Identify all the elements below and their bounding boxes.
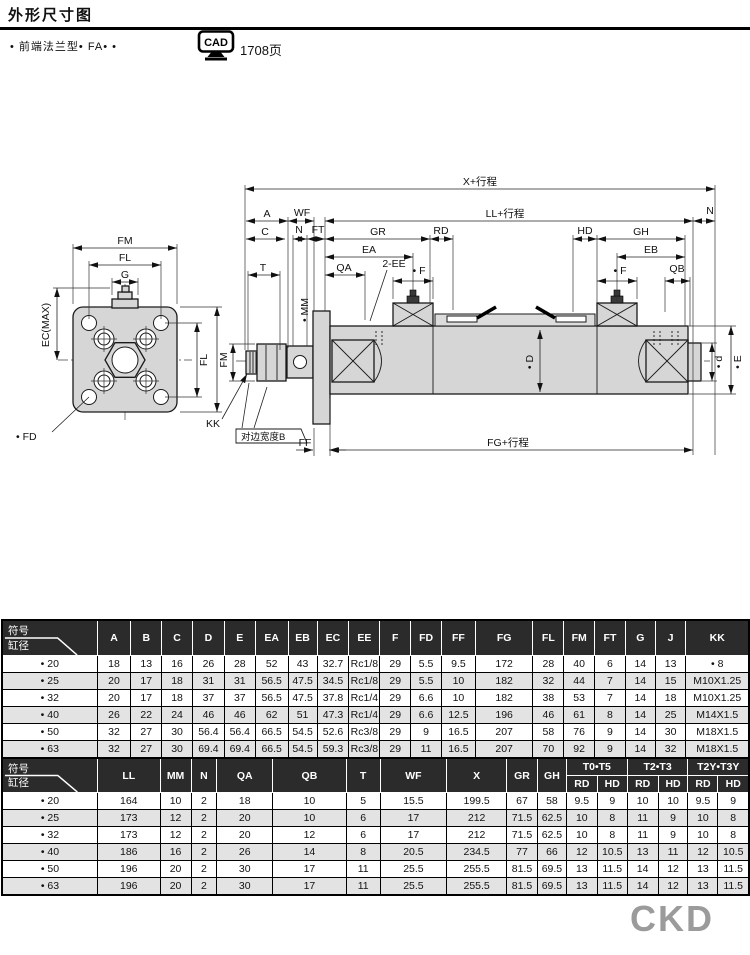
data-cell: 43 <box>288 656 317 673</box>
table-row: • 25173122201061721271.562.5108119108 <box>2 810 749 827</box>
data-cell: 29 <box>380 690 411 707</box>
data-cell: 46 <box>224 707 255 724</box>
bore-cell: • 25 <box>2 673 97 690</box>
data-cell: • 8 <box>686 656 749 673</box>
col-header: GR <box>507 758 538 793</box>
data-cell: 255.5 <box>447 861 507 878</box>
data-cell: 18 <box>655 690 686 707</box>
dim-label-f-front: • F <box>412 265 425 277</box>
data-cell: 38 <box>533 690 564 707</box>
data-cell: 37 <box>224 690 255 707</box>
table-row: • 32173122201261721271.562.5108119108 <box>2 827 749 844</box>
data-cell: 173 <box>97 810 160 827</box>
data-cell: 196 <box>97 861 160 878</box>
dim-label-ll-stroke: LL+行程 <box>486 207 525 220</box>
col-header: EB <box>288 620 317 656</box>
dim-label-ff: FF <box>299 437 312 449</box>
data-cell: 186 <box>97 844 160 861</box>
data-cell: 12 <box>566 844 597 861</box>
data-cell: 14 <box>627 861 658 878</box>
col-header: MM <box>160 758 191 793</box>
data-cell: 18 <box>162 673 193 690</box>
data-cell: 6 <box>595 656 626 673</box>
sub-col-header: RD <box>627 776 658 793</box>
data-cell: 2 <box>191 793 217 810</box>
cad-icon: CAD <box>197 30 237 61</box>
data-cell: 11.5 <box>597 861 627 878</box>
data-cell: 199.5 <box>447 793 507 810</box>
data-cell: 10.5 <box>718 844 749 861</box>
data-cell: 15.5 <box>380 793 447 810</box>
col-header: EC <box>317 620 349 656</box>
data-cell: 11 <box>627 827 658 844</box>
table-row: • 32201718373756.547.537.8Rc1/4296.61018… <box>2 690 749 707</box>
corner-symbol-label: 符号 <box>8 761 29 776</box>
col-header: F <box>380 620 411 656</box>
data-cell: 2 <box>191 861 217 878</box>
dim-label-qb: QB <box>669 263 684 275</box>
data-cell: 207 <box>475 724 533 741</box>
table-row: • 201813162628524332.7Rc1/8295.59.517228… <box>2 656 749 673</box>
data-cell: 27 <box>131 741 162 759</box>
sub-col-header: HD <box>597 776 627 793</box>
data-cell: Rc1/4 <box>349 690 380 707</box>
group-header: T0•T5 <box>566 758 627 776</box>
data-cell: 27 <box>131 724 162 741</box>
data-cell: 29 <box>380 656 411 673</box>
data-cell: 56.4 <box>224 724 255 741</box>
data-cell: 10.5 <box>597 844 627 861</box>
data-cell: 14 <box>625 741 655 759</box>
dim-label-mm: • MM <box>299 298 311 322</box>
data-cell: 8 <box>718 827 749 844</box>
data-cell: 10 <box>273 793 347 810</box>
data-cell: 17 <box>380 810 447 827</box>
data-cell: 62.5 <box>537 810 566 827</box>
dim-label-a: A <box>263 208 270 220</box>
data-cell: 56.5 <box>255 673 288 690</box>
data-cell: 20 <box>160 878 191 896</box>
dimension-table-2: 符号缸径LLMMNQAQBTWFXGRGHT0•T5T2•T3T2Y•T3YRD… <box>1 757 750 896</box>
data-cell: 13 <box>627 844 658 861</box>
col-header: WF <box>380 758 447 793</box>
cad-icon-label: CAD <box>204 37 228 49</box>
data-cell: 5.5 <box>411 673 442 690</box>
data-cell: 16 <box>162 656 193 673</box>
data-cell: Rc3/8 <box>349 741 380 759</box>
data-cell: 14 <box>625 724 655 741</box>
data-cell: 26 <box>97 707 131 724</box>
data-cell: 18 <box>162 690 193 707</box>
data-cell: 54.5 <box>288 724 317 741</box>
front-cushion <box>332 340 382 382</box>
bore-cell: • 20 <box>2 793 97 810</box>
dim-label-n-right: N <box>706 205 714 217</box>
data-cell: 69.5 <box>537 861 566 878</box>
data-cell: 5.5 <box>411 656 442 673</box>
data-cell: 67 <box>507 793 538 810</box>
data-cell: 10 <box>688 810 718 827</box>
dim-label-qa: QA <box>336 262 351 274</box>
data-cell: 32 <box>97 724 131 741</box>
col-header: D <box>192 620 224 656</box>
data-cell: 10 <box>441 690 475 707</box>
sub-col-header: HD <box>718 776 749 793</box>
dimension-drawing: X+行程 A WF LL+行程 N C N FT GR RD HD GH EA … <box>0 158 750 470</box>
dim-label-kk: KK <box>206 418 220 430</box>
data-cell: 11.5 <box>718 878 749 896</box>
data-cell: 54.5 <box>288 741 317 759</box>
data-cell: 16 <box>160 844 191 861</box>
data-cell: 34.5 <box>317 673 349 690</box>
data-cell: 17 <box>131 690 162 707</box>
flat-b-leader-1 <box>242 383 249 428</box>
data-cell: 20 <box>160 861 191 878</box>
data-cell: 37.8 <box>317 690 349 707</box>
data-cell: M18X1.5 <box>686 741 749 759</box>
bore-cell: • 50 <box>2 861 97 878</box>
data-cell: M18X1.5 <box>686 724 749 741</box>
data-cell: 76 <box>564 724 595 741</box>
data-cell: 29 <box>380 673 411 690</box>
data-cell: 2 <box>191 844 217 861</box>
col-header: J <box>655 620 686 656</box>
data-cell: 6 <box>346 827 380 844</box>
data-cell: Rc1/8 <box>349 673 380 690</box>
data-cell: 2 <box>191 810 217 827</box>
data-cell: 14 <box>625 690 655 707</box>
table-row: • 201641021810515.5199.567589.5910109.59 <box>2 793 749 810</box>
data-cell: 26 <box>217 844 273 861</box>
dim-label-gr: GR <box>370 226 386 238</box>
data-cell: 173 <box>97 827 160 844</box>
dim-label-gh: GH <box>633 226 649 238</box>
data-cell: 12 <box>273 827 347 844</box>
data-cell: 17 <box>131 673 162 690</box>
data-cell: 14 <box>625 707 655 724</box>
dim-label-t: T <box>260 262 267 274</box>
data-cell: M10X1.25 <box>686 690 749 707</box>
data-cell: 6.6 <box>411 707 442 724</box>
data-cell: 9.5 <box>441 656 475 673</box>
fd-leader <box>52 397 89 432</box>
catalog-page: 外形尺寸图 • 前端法兰型• FA• • CAD 1708页 <box>0 0 750 955</box>
col-header: X <box>447 758 507 793</box>
corner-header: 符号缸径 <box>2 620 97 656</box>
dim-label-e: • E <box>732 355 744 369</box>
data-cell: 8 <box>346 844 380 861</box>
data-cell: 10 <box>627 793 658 810</box>
data-cell: 14 <box>273 844 347 861</box>
dim-label-f-rear: • F <box>613 265 626 277</box>
data-cell: 9 <box>718 793 749 810</box>
data-cell: 9 <box>658 810 688 827</box>
data-cell: 11 <box>658 844 688 861</box>
dim-label-fm-h: FM <box>117 235 132 247</box>
bore-cell: • 32 <box>2 690 97 707</box>
dim-label-fm-v: FM <box>218 352 230 367</box>
col-header: FL <box>533 620 564 656</box>
data-cell: 25 <box>655 707 686 724</box>
page-title: 外形尺寸图 <box>8 4 93 25</box>
col-header: QB <box>273 758 347 793</box>
data-cell: 61 <box>564 707 595 724</box>
data-cell: 47.5 <box>288 673 317 690</box>
data-cell: 30 <box>655 724 686 741</box>
data-cell: 31 <box>224 673 255 690</box>
data-cell: 37 <box>192 690 224 707</box>
data-cell: 71.5 <box>507 810 538 827</box>
data-cell: 7 <box>595 673 626 690</box>
bore-cell: • 40 <box>2 844 97 861</box>
data-cell: 92 <box>564 741 595 759</box>
dim-label-wf: WF <box>294 207 310 219</box>
col-header: EA <box>255 620 288 656</box>
data-cell: 59.3 <box>317 741 349 759</box>
data-cell: 172 <box>475 656 533 673</box>
data-cell: 16.5 <box>441 741 475 759</box>
data-cell: 8 <box>597 810 627 827</box>
data-cell: 24 <box>162 707 193 724</box>
data-cell: 30 <box>162 724 193 741</box>
spec-table: 符号缸径LLMMNQAQBTWFXGRGHT0•T5T2•T3T2Y•T3YRD… <box>1 757 750 896</box>
data-cell: 11 <box>346 878 380 896</box>
data-cell: 12 <box>658 878 688 896</box>
data-cell: 7 <box>595 690 626 707</box>
col-header: C <box>162 620 193 656</box>
data-cell: 207 <box>475 741 533 759</box>
data-cell: 9 <box>595 741 626 759</box>
data-cell: 81.5 <box>507 878 538 896</box>
data-cell: 29 <box>380 707 411 724</box>
data-cell: 52 <box>255 656 288 673</box>
data-cell: 20.5 <box>380 844 447 861</box>
ee-leader <box>370 270 387 321</box>
data-cell: 18 <box>217 793 273 810</box>
dim-label-ec-max: EC(MAX) <box>40 303 52 347</box>
col-header: G <box>625 620 655 656</box>
corner-symbol-label: 符号 <box>8 623 29 638</box>
data-cell: 62.5 <box>537 827 566 844</box>
group-header: T2•T3 <box>627 758 688 776</box>
data-cell: 11 <box>346 861 380 878</box>
data-cell: 20 <box>217 827 273 844</box>
data-cell: 14 <box>627 878 658 896</box>
table-row: • 6332273069.469.466.554.559.3Rc3/829111… <box>2 741 749 759</box>
data-cell: 9.5 <box>688 793 718 810</box>
data-cell: 30 <box>162 741 193 759</box>
data-cell: 40 <box>564 656 595 673</box>
group-header: T2Y•T3Y <box>688 758 749 776</box>
data-cell: 12 <box>160 810 191 827</box>
data-cell: 13 <box>566 878 597 896</box>
data-cell: 182 <box>475 673 533 690</box>
data-cell: 196 <box>97 878 160 896</box>
data-cell: 255.5 <box>447 878 507 896</box>
corner-header: 符号缸径 <box>2 758 97 793</box>
bore-cell: • 50 <box>2 724 97 741</box>
front-flange-view <box>73 286 177 412</box>
data-cell: 9 <box>658 827 688 844</box>
sub-col-header: RD <box>688 776 718 793</box>
data-cell: 25.5 <box>380 878 447 896</box>
table-row: • 5032273056.456.466.554.552.6Rc3/829916… <box>2 724 749 741</box>
brand-logo: CKD <box>630 898 714 940</box>
data-cell: 234.5 <box>447 844 507 861</box>
data-cell: 47.5 <box>288 690 317 707</box>
data-cell: M14X1.5 <box>686 707 749 724</box>
data-cell: 17 <box>273 878 347 896</box>
data-cell: 10 <box>566 810 597 827</box>
data-cell: 66.5 <box>255 741 288 759</box>
data-cell: 77 <box>507 844 538 861</box>
data-cell: 10 <box>566 827 597 844</box>
data-cell: 11.5 <box>718 861 749 878</box>
table-row: • 402622244646625147.3Rc1/4296.612.51964… <box>2 707 749 724</box>
data-cell: 10 <box>441 673 475 690</box>
data-cell: 20 <box>97 690 131 707</box>
bore-cell: • 25 <box>2 810 97 827</box>
data-cell: 13 <box>655 656 686 673</box>
data-cell: 56.5 <box>255 690 288 707</box>
corner-bore-label: 缸径 <box>8 775 29 790</box>
data-cell: 13 <box>566 861 597 878</box>
data-cell: 52.6 <box>317 724 349 741</box>
data-cell: 28 <box>224 656 255 673</box>
dimension-table-1: 符号缸径ABCDEEAEBECEEFFDFFFGFLFMFTGJKK• 2018… <box>1 619 750 759</box>
data-cell: 17 <box>273 861 347 878</box>
data-cell: 8 <box>597 827 627 844</box>
dim-label-fl-h: FL <box>119 252 131 264</box>
data-cell: 46 <box>533 707 564 724</box>
col-header: FM <box>564 620 595 656</box>
data-cell: 62 <box>255 707 288 724</box>
corner-bore-label: 缸径 <box>8 638 29 653</box>
data-cell: 58 <box>533 724 564 741</box>
col-header: FD <box>411 620 442 656</box>
dim-label-ea: EA <box>362 244 376 256</box>
data-cell: 9.5 <box>566 793 597 810</box>
data-cell: 69.4 <box>224 741 255 759</box>
data-cell: Rc1/4 <box>349 707 380 724</box>
col-header: QA <box>217 758 273 793</box>
col-header: FG <box>475 620 533 656</box>
data-cell: 164 <box>97 793 160 810</box>
data-cell: 71.5 <box>507 827 538 844</box>
data-cell: 10 <box>658 793 688 810</box>
bore-cell: • 63 <box>2 878 97 896</box>
col-header: FT <box>595 620 626 656</box>
bore-cell: • 32 <box>2 827 97 844</box>
spec-table: 符号缸径ABCDEEAEBECEEFFDFFFGFLFMFTGJKK• 2018… <box>1 619 750 759</box>
dim-label-eb: EB <box>644 244 658 256</box>
data-cell: 56.4 <box>192 724 224 741</box>
dim-label-d-rod: • d <box>713 356 725 369</box>
data-cell: 14 <box>625 656 655 673</box>
data-cell: 6 <box>346 810 380 827</box>
data-cell: Rc1/8 <box>349 656 380 673</box>
cad-page-ref: 1708页 <box>240 40 282 59</box>
data-cell: 182 <box>475 690 533 707</box>
bore-cell: • 63 <box>2 741 97 759</box>
data-cell: 81.5 <box>507 861 538 878</box>
dim-label-fg-stroke: FG+行程 <box>487 436 529 449</box>
data-cell: 13 <box>688 878 718 896</box>
dim-label-fd: • FD <box>16 431 37 443</box>
model-subtitle: • 前端法兰型• FA• • <box>10 38 117 54</box>
col-header: LL <box>97 758 160 793</box>
data-cell: 29 <box>380 741 411 759</box>
data-cell: 66 <box>537 844 566 861</box>
data-cell: 13 <box>688 861 718 878</box>
table-row: • 5019620230171125.5255.581.569.51311.51… <box>2 861 749 878</box>
dim-label-g: G <box>121 269 129 281</box>
data-cell: 6.6 <box>411 690 442 707</box>
data-cell: 70 <box>533 741 564 759</box>
table-row: • 6319620230171125.5255.581.569.51311.51… <box>2 878 749 896</box>
sub-col-header: RD <box>566 776 597 793</box>
col-header: E <box>224 620 255 656</box>
data-cell: 32.7 <box>317 656 349 673</box>
data-cell: 28 <box>533 656 564 673</box>
col-header: B <box>131 620 162 656</box>
data-cell: 44 <box>564 673 595 690</box>
data-cell: 10 <box>273 810 347 827</box>
data-cell: 66.5 <box>255 724 288 741</box>
data-cell: 32 <box>655 741 686 759</box>
data-cell: 8 <box>595 707 626 724</box>
data-cell: 20 <box>217 810 273 827</box>
col-header: GH <box>537 758 566 793</box>
data-cell: 15 <box>655 673 686 690</box>
data-cell: 47.3 <box>317 707 349 724</box>
title-rule <box>0 27 750 30</box>
data-cell: 11.5 <box>597 878 627 896</box>
data-cell: 9 <box>595 724 626 741</box>
data-cell: 2 <box>191 878 217 896</box>
data-cell: 31 <box>192 673 224 690</box>
data-cell: 25.5 <box>380 861 447 878</box>
data-cell: 58 <box>537 793 566 810</box>
col-header: EE <box>349 620 380 656</box>
data-cell: 16.5 <box>441 724 475 741</box>
sub-col-header: HD <box>658 776 688 793</box>
data-cell: 12.5 <box>441 707 475 724</box>
flat-b-leader-2 <box>254 387 267 428</box>
data-cell: M10X1.25 <box>686 673 749 690</box>
dim-label-n-mid: N <box>295 224 303 236</box>
col-header: T <box>346 758 380 793</box>
data-cell: 8 <box>718 810 749 827</box>
data-cell: 29 <box>380 724 411 741</box>
data-cell: 22 <box>131 707 162 724</box>
data-cell: 53 <box>564 690 595 707</box>
data-cell: 17 <box>380 827 447 844</box>
col-header: A <box>97 620 131 656</box>
data-cell: 13 <box>131 656 162 673</box>
data-cell: 212 <box>447 827 507 844</box>
data-cell: 14 <box>625 673 655 690</box>
dim-label-c: C <box>261 226 269 238</box>
dim-label-ee: 2-EE <box>382 258 405 270</box>
dim-label-rd: RD <box>433 225 449 237</box>
dim-label-flat-b: 对边宽度B <box>241 431 285 443</box>
col-header: FF <box>441 620 475 656</box>
data-cell: 32 <box>97 741 131 759</box>
data-cell: 51 <box>288 707 317 724</box>
data-cell: 26 <box>192 656 224 673</box>
data-cell: 20 <box>97 673 131 690</box>
